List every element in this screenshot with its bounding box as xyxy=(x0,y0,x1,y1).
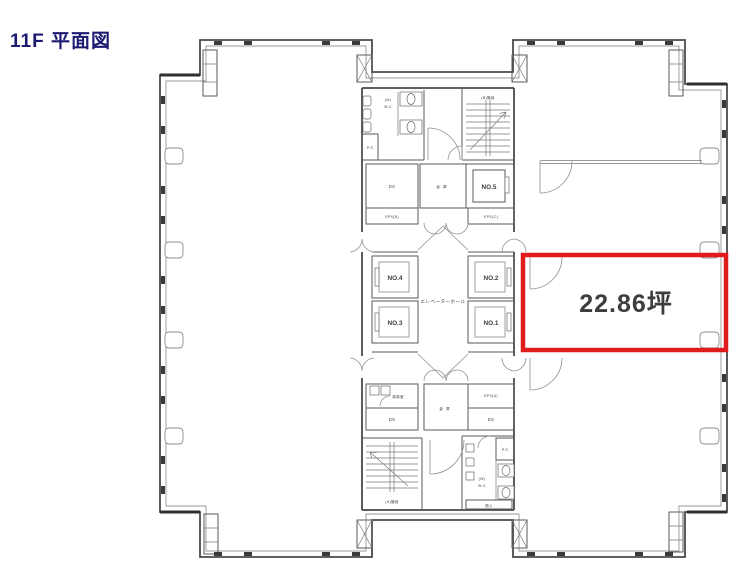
label-kitchenette: 湯沸室 xyxy=(392,394,404,399)
label-wc-men-2: W.C xyxy=(384,105,392,109)
label-eps-c: EPS(C) xyxy=(484,215,498,219)
upper-core-rooms: DS 倉庫 NO.5 EPS(B) EPS(C) xyxy=(366,164,514,224)
floor-plan-page: 11F 平面図 xyxy=(0,0,752,567)
label-wc-men-1: (M) xyxy=(385,98,391,102)
elevator-shaft-no3: NO.3 xyxy=(372,301,418,343)
label-elevator-hall: エレベーターホール xyxy=(421,298,466,305)
floor-plan-drawing: (M) W.C P.S (B)階段 DS 倉庫 NO.5 EPS(B) EPS(… xyxy=(0,0,752,567)
mens-wc: (M) W.C P.S xyxy=(362,90,424,160)
label-elevator-no2: NO.2 xyxy=(484,275,499,282)
label-ds-top: DS xyxy=(389,184,396,189)
right-partitions xyxy=(540,161,702,164)
label-wc-women-2: W.C xyxy=(478,484,486,488)
label-elevator-no3: NO.3 xyxy=(388,320,403,327)
lower-core-rooms: 湯沸室 DS 倉庫 EPS(A) DS xyxy=(366,384,514,430)
label-eps-a: EPS(A) xyxy=(484,394,498,398)
label-elevator-no4: NO.4 xyxy=(388,275,403,282)
highlighted-room-area-label: 22.86坪 xyxy=(579,290,673,318)
label-ds-lower-left: DS xyxy=(389,417,396,422)
label-eps-b: EPS(B) xyxy=(385,215,399,219)
elevator-shaft-no2: NO.2 xyxy=(468,256,514,298)
label-closet: 物入 xyxy=(485,503,493,508)
label-stair-b: (B)階段 xyxy=(481,95,495,100)
label-ds-lower-right: DS xyxy=(488,417,495,422)
highlighted-room: 22.86坪 xyxy=(523,255,726,350)
elevator-shaft-no1: NO.1 xyxy=(468,301,514,343)
elevator-hall: NO.4 NO.3 NO.2 NO.1 エレベーターホール xyxy=(372,252,514,352)
label-elevator-no1: NO.1 xyxy=(484,320,499,327)
staircase-a: (A)階段 xyxy=(362,438,422,510)
label-ps-bottom: P.S xyxy=(502,448,509,452)
label-ps-top: P.S xyxy=(367,146,374,150)
label-storage-top: 倉庫 xyxy=(436,184,449,189)
elevator-shaft-no4: NO.4 xyxy=(372,256,418,298)
label-elevator-no5: NO.5 xyxy=(482,184,497,191)
label-stair-a: (A)階段 xyxy=(385,499,399,504)
label-wc-women-1: (W) xyxy=(479,477,486,481)
label-storage-lower: 倉庫 xyxy=(439,406,452,411)
womens-wc: P.S (W) W.C 物入 xyxy=(462,436,514,510)
staircase-b: (B)階段 xyxy=(462,88,510,160)
